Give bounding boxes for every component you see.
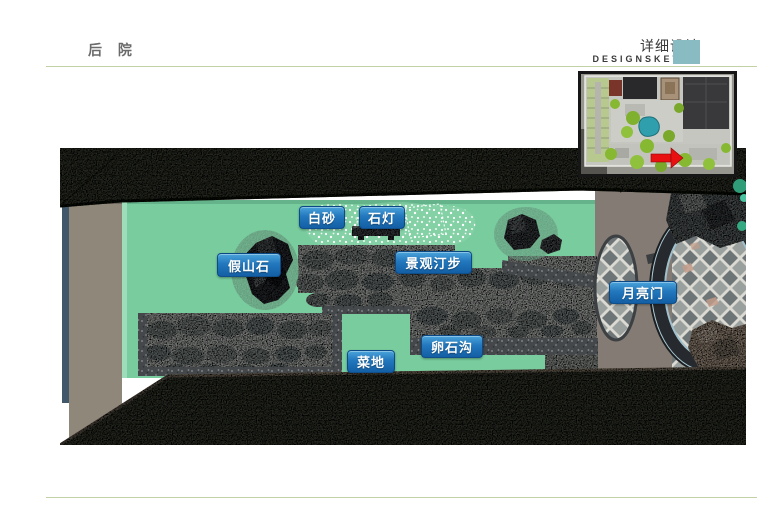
plan-label-rockery-stone: 假山石 xyxy=(217,253,281,277)
site-plan-thumbnail xyxy=(581,74,734,174)
left-wall xyxy=(62,198,122,445)
bottom-roof xyxy=(60,368,746,445)
page-title: 后 院 xyxy=(88,40,138,60)
plan-label-moon-gate: 月亮门 xyxy=(609,281,677,304)
plan-label-pebble-ditch: 卵石沟 xyxy=(421,335,483,358)
plan-label-white-sand: 白砂 xyxy=(299,206,345,229)
plan-label-stepping-stones: 景观汀步 xyxy=(395,251,472,274)
plan-label-vegetable-plot: 菜地 xyxy=(347,350,395,373)
overview-inset xyxy=(578,71,737,177)
plan-label-stone-lantern: 石灯 xyxy=(359,206,405,229)
slide-page: { "header": { "section_title": "后 院", "d… xyxy=(0,0,782,531)
footer-rule xyxy=(46,497,757,498)
teal-accent-square xyxy=(673,40,700,64)
header-rule xyxy=(46,66,757,67)
backyard-plan-image: 白砂 石灯 假山石 景观汀步 月亮门 卵石沟 菜地 xyxy=(60,148,746,445)
lower-flagstone-terrace xyxy=(138,313,340,376)
